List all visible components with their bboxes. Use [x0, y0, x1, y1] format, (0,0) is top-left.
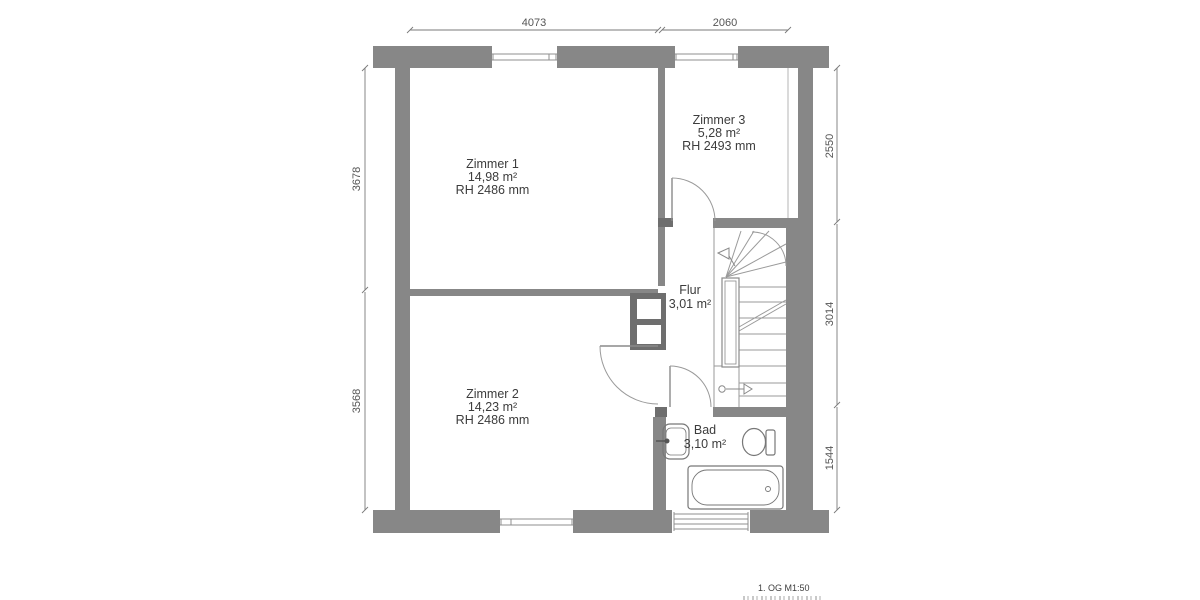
window-top-zimmer3 — [675, 46, 738, 68]
room-area: 5,28 m² — [654, 127, 784, 140]
wall-zimmer2-bad — [653, 417, 666, 510]
window-bottom-bad — [672, 510, 750, 533]
room-label-zimmer3: Zimmer 3 5,28 m² RH 2493 mm — [654, 114, 784, 152]
wall-zimmer1-right — [658, 68, 665, 286]
dim-left-2: 3568 — [351, 389, 363, 413]
room-height: RH 2493 mm — [654, 140, 784, 153]
wall-stub-bad-corner — [655, 407, 667, 417]
room-name: Flur — [650, 283, 730, 297]
room-height: RH 2486 mm — [420, 414, 565, 427]
wall-exterior-right — [798, 68, 813, 510]
room-height: RH 2486 mm — [420, 184, 565, 197]
dim-right-2: 3014 — [824, 302, 836, 326]
room-name: Zimmer 3 — [654, 114, 784, 127]
window-top-zimmer1 — [492, 46, 557, 68]
dimension-lines — [362, 27, 840, 513]
wall-exterior-top — [373, 46, 829, 68]
door-zimmer2-icon — [600, 346, 658, 404]
room-label-flur: Flur 3,01 m² — [650, 283, 730, 311]
wall-exterior-bottom — [373, 510, 829, 533]
bathtub-icon — [688, 466, 783, 509]
door-zimmer3-icon — [672, 178, 715, 221]
clipped-footer-line — [743, 596, 823, 600]
floor-plan: 4073 2060 3678 3568 2550 3014 1544 Zimme… — [0, 0, 1200, 600]
wall-exterior-left — [395, 68, 410, 510]
room-area: 14,98 m² — [420, 171, 565, 184]
dim-right-3: 1544 — [824, 446, 836, 470]
room-area: 3,10 m² — [670, 438, 740, 452]
wall-stub-zimmer3-door — [658, 218, 673, 227]
staircase-icon — [714, 228, 786, 407]
room-name: Zimmer 1 — [420, 158, 565, 171]
dim-left-1: 3678 — [351, 167, 363, 191]
dim-top-2: 2060 — [713, 17, 737, 29]
wall-stairwell-right-liner — [786, 218, 798, 510]
room-label-bad: Bad 3,10 m² — [670, 424, 740, 451]
dim-top-1: 4073 — [522, 17, 546, 29]
room-area: 14,23 m² — [420, 401, 565, 414]
toilet-icon — [743, 429, 776, 456]
stair-direction-arrow-icon — [718, 248, 752, 394]
room-label-zimmer2: Zimmer 2 14,23 m² RH 2486 mm — [420, 388, 565, 426]
plan-scale-label: 1. OG M1:50 — [758, 583, 810, 593]
room-name: Zimmer 2 — [420, 388, 565, 401]
wall-bad-top — [713, 407, 786, 417]
room-area: 3,01 m² — [650, 297, 730, 311]
wall-zimmer3-bottom — [713, 218, 786, 228]
window-bottom-zimmer2 — [500, 510, 573, 533]
wall-zimmer1-zimmer2 — [410, 289, 658, 296]
dim-right-1: 2550 — [824, 134, 836, 158]
duct-shaft-cell — [637, 325, 661, 344]
room-label-zimmer1: Zimmer 1 14,98 m² RH 2486 mm — [420, 158, 565, 196]
room-name: Bad — [670, 424, 740, 438]
door-bad-icon — [670, 366, 711, 407]
